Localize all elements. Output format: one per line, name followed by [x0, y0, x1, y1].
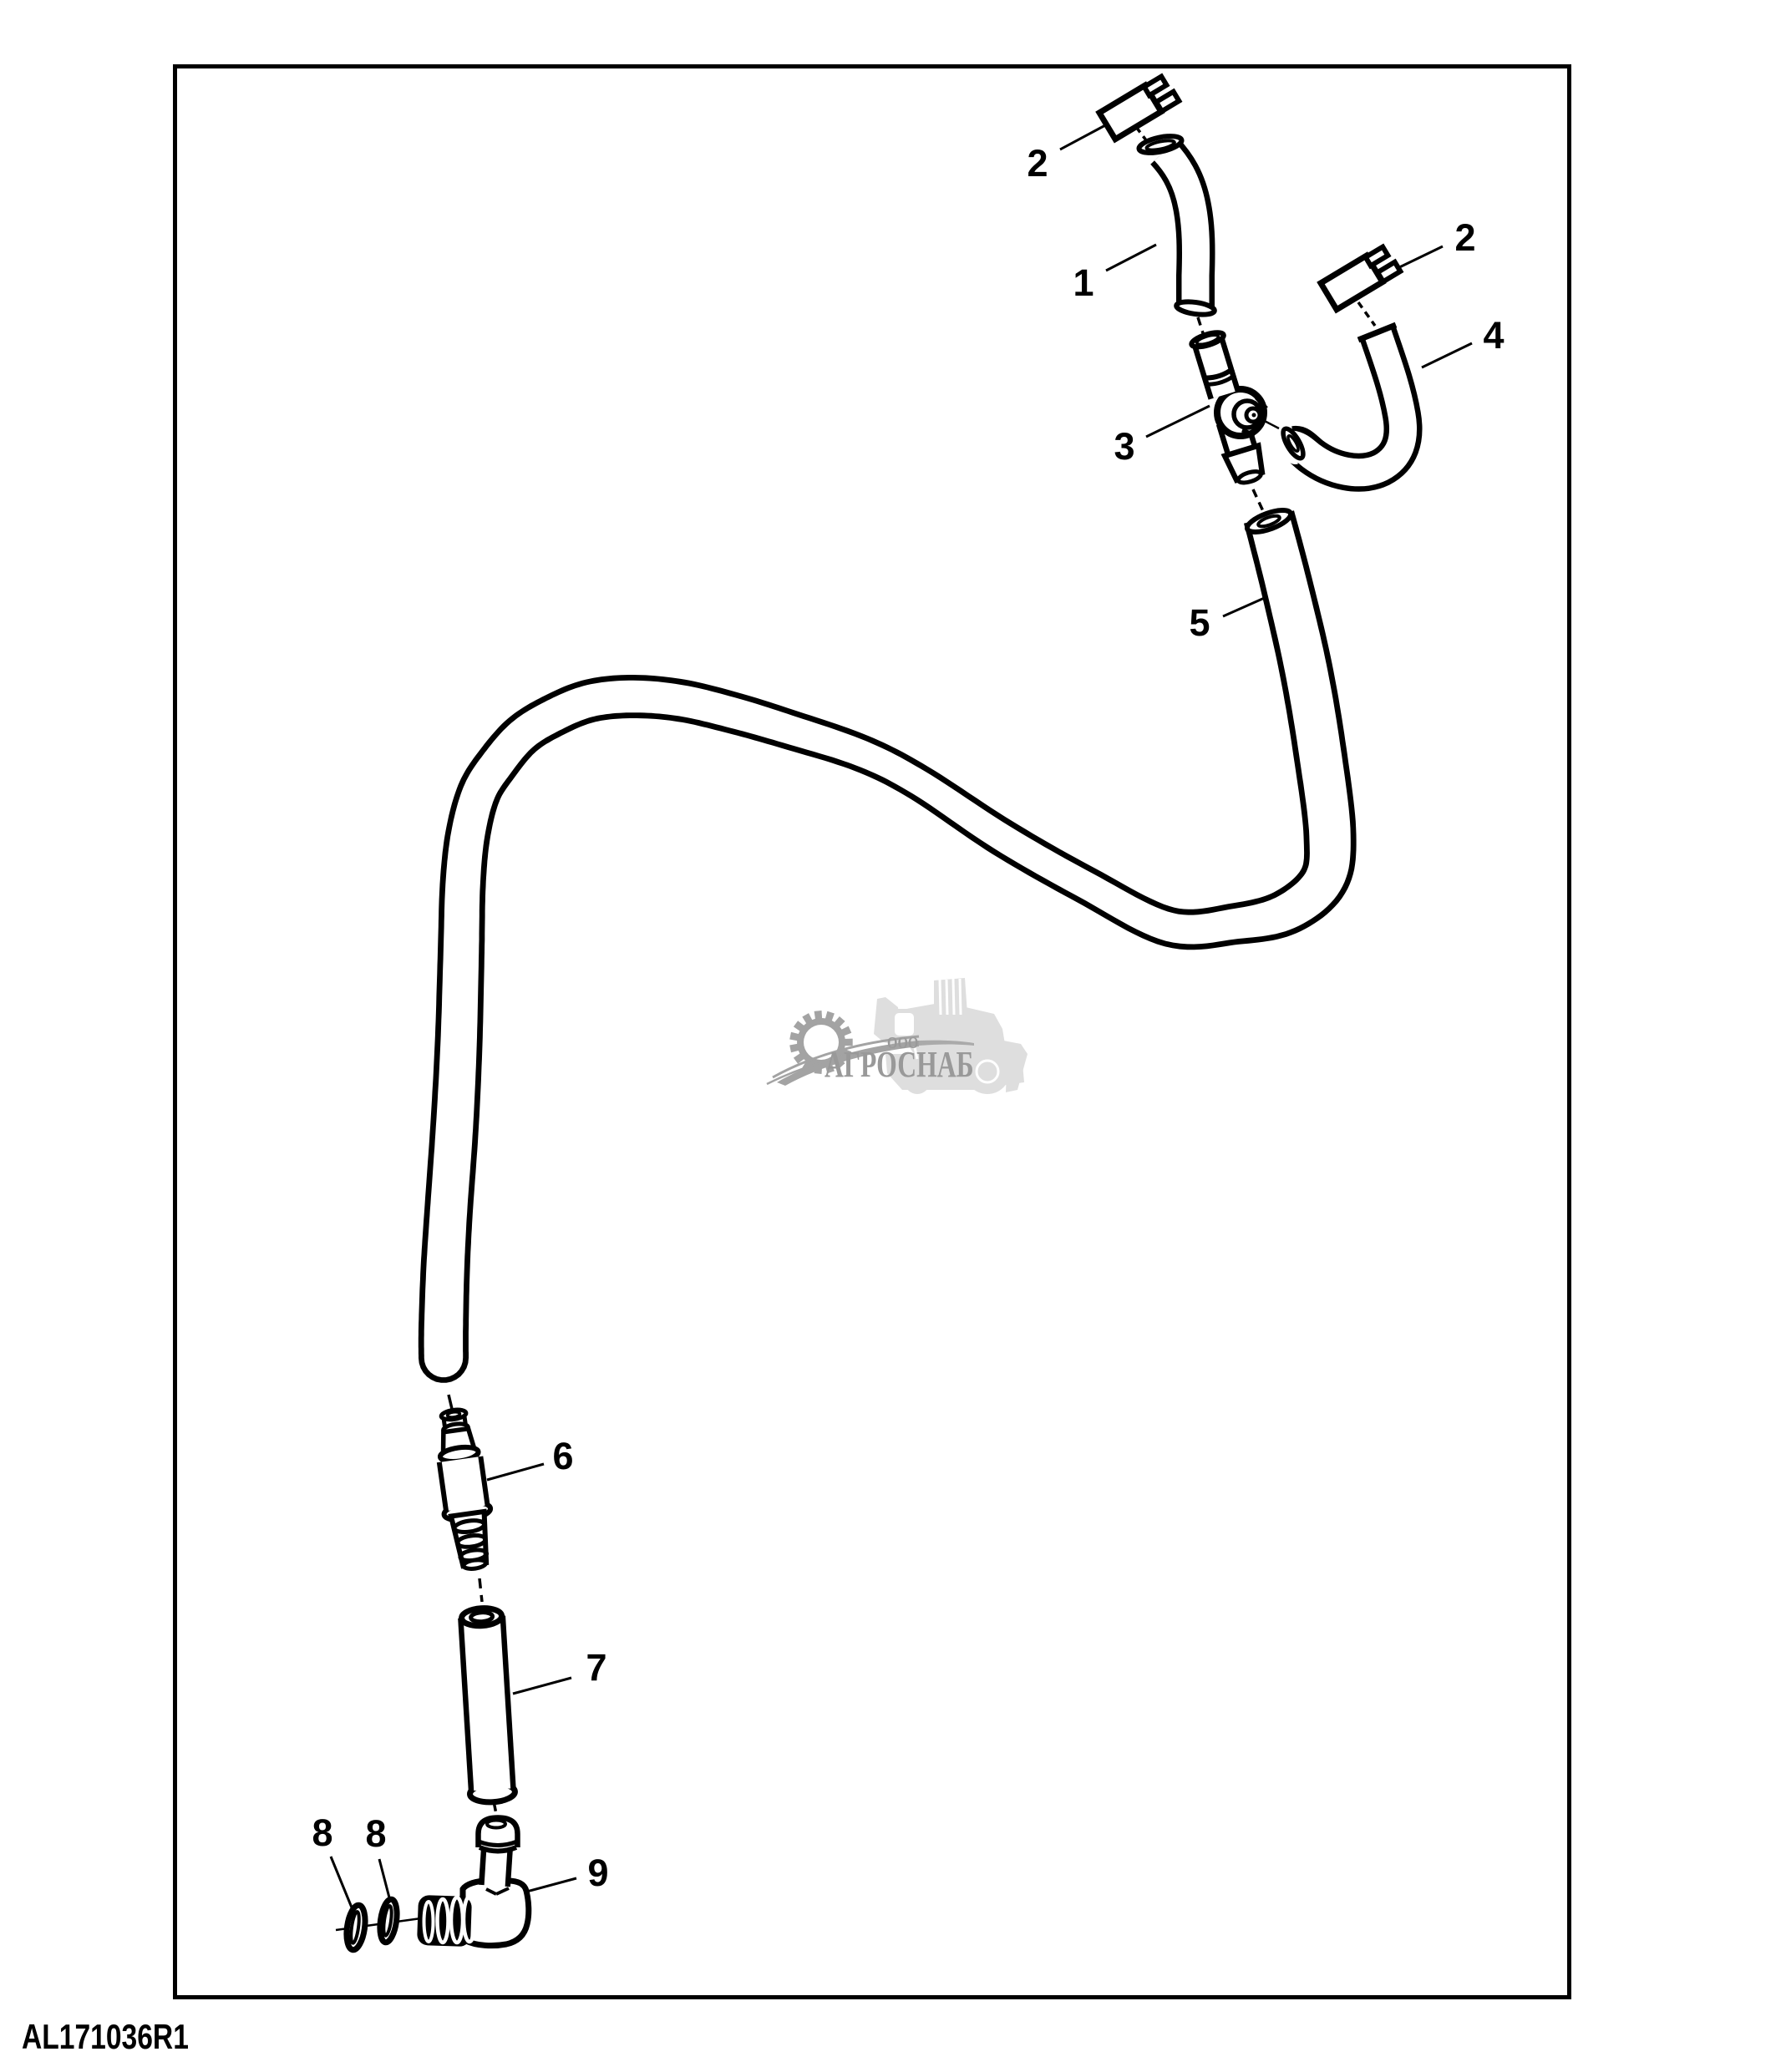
svg-text:8: 8 — [365, 1812, 386, 1855]
svg-text:7: 7 — [586, 1646, 606, 1689]
svg-text:1: 1 — [1073, 261, 1094, 304]
svg-text:АГРОСНАБ: АГРОСНАБ — [825, 1045, 974, 1085]
svg-text:5: 5 — [1189, 601, 1210, 644]
svg-text:4: 4 — [1483, 314, 1504, 357]
svg-text:8: 8 — [312, 1811, 332, 1854]
svg-text:3: 3 — [1114, 425, 1134, 468]
svg-text:AL171036R1: AL171036R1 — [22, 2019, 189, 2057]
svg-text:2: 2 — [1027, 142, 1048, 185]
svg-text:2: 2 — [1454, 216, 1475, 259]
svg-text:9: 9 — [587, 1852, 608, 1894]
svg-text:6: 6 — [552, 1435, 573, 1477]
